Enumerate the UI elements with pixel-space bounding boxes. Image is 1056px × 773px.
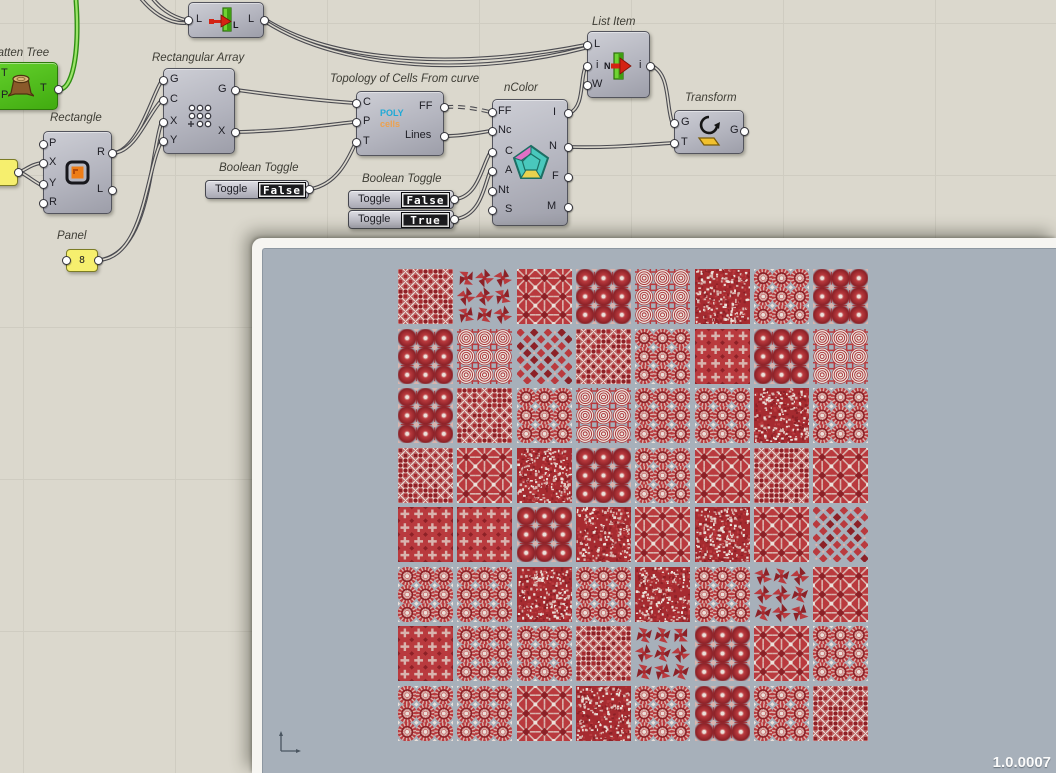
rectangle-icon <box>65 160 90 185</box>
pattern-tile <box>517 448 572 503</box>
port-dot[interactable] <box>14 168 23 177</box>
pattern-tile <box>576 626 631 681</box>
port-dot[interactable] <box>564 109 573 118</box>
rectangle-input-y: Y <box>49 177 56 189</box>
wire-sorter-to-listitem-1 <box>266 20 585 59</box>
pattern-tile <box>695 448 750 503</box>
transform-swirl-icon <box>692 113 726 149</box>
port-dot[interactable] <box>159 118 168 127</box>
pattern-tile <box>754 388 809 443</box>
flatten-tree-label: Flatten Tree <box>0 47 49 59</box>
pattern-tile <box>813 626 868 681</box>
rectangle-input-r: R <box>49 196 57 208</box>
wire-ncolor-i-to-listitem-i <box>570 68 585 113</box>
port-dot[interactable] <box>54 85 63 94</box>
topology-input-c: C <box>363 96 371 108</box>
port-dot[interactable] <box>159 137 168 146</box>
pattern-tile <box>695 626 750 681</box>
wire-rect-r-to-array-c-inner <box>114 101 161 153</box>
pattern-tile <box>457 507 512 562</box>
pattern-tile <box>576 448 631 503</box>
viewport-canvas[interactable]: 1.0.0007 <box>262 248 1056 773</box>
pattern-tile <box>635 448 690 503</box>
port-dot[interactable] <box>583 41 592 50</box>
ncolor-label: nColor <box>504 82 538 94</box>
port-dot[interactable] <box>159 96 168 105</box>
toggle2a-value[interactable]: False <box>401 192 450 208</box>
boolean-toggle-group-label: Boolean Toggle <box>362 173 442 185</box>
pattern-tile <box>457 329 512 384</box>
port-dot[interactable] <box>670 119 679 128</box>
wire-topo-ff-to-ncolor-ff-inner <box>446 107 490 112</box>
list-item-input-l: L <box>594 38 600 50</box>
pattern-tile <box>813 388 868 443</box>
array-input-x: X <box>170 115 177 127</box>
port-dot[interactable] <box>440 132 449 141</box>
pattern-tile <box>695 507 750 562</box>
wire-toggle2b-to-ncolor-a <box>456 172 490 219</box>
port-dot[interactable] <box>740 127 749 136</box>
svg-text:N: N <box>604 61 611 71</box>
wire-into-sorter-2-inner <box>136 0 186 23</box>
wire-topo-lines-to-ncolor-nc-inner <box>446 131 490 136</box>
wire-rect-r-to-array-g <box>114 82 161 153</box>
pattern-tile <box>695 269 750 324</box>
wire-array-x-to-topo-p <box>237 122 354 132</box>
array-dots-icon <box>184 102 216 136</box>
pattern-tile <box>398 329 453 384</box>
wire-slider-to-rect-x-inner <box>20 163 41 172</box>
sort-arrow-icon: L <box>207 6 245 34</box>
list-item-output-i: i <box>639 59 641 71</box>
pattern-tile <box>576 269 631 324</box>
port-dot[interactable] <box>450 195 459 204</box>
transform-input-t: T <box>681 136 688 148</box>
port-dot[interactable] <box>231 128 240 137</box>
rectangle-input-p: P <box>49 137 56 149</box>
pattern-tile <box>576 388 631 443</box>
list-item-label: List Item <box>592 16 635 28</box>
port-dot[interactable] <box>646 62 655 71</box>
port-dot[interactable] <box>39 199 48 208</box>
wire-ncolor-n-to-transform-t <box>570 143 672 147</box>
pattern-tile <box>695 686 750 741</box>
transform-input-g: G <box>681 116 690 128</box>
ncolor-input-nt: Nt <box>498 184 509 196</box>
port-dot[interactable] <box>39 180 48 189</box>
pattern-tile <box>754 448 809 503</box>
rectangle-label: Rectangle <box>50 112 102 124</box>
tree-stump-icon <box>8 71 34 98</box>
topology-label: Topology of Cells From curve <box>330 73 479 85</box>
pattern-tile <box>398 507 453 562</box>
toggle1-value[interactable]: False <box>258 182 306 198</box>
wire-into-sorter-1-inner <box>148 0 186 20</box>
wire-rect-r-to-array-g-inner <box>114 82 161 153</box>
pattern-tile <box>754 626 809 681</box>
pattern-tile <box>635 686 690 741</box>
rectangle-input-x: X <box>49 156 56 168</box>
port-dot[interactable] <box>62 256 71 265</box>
pattern-tile <box>635 269 690 324</box>
wire-slider-to-rect-y-inner <box>20 172 41 185</box>
pattern-tile <box>398 686 453 741</box>
port-dot[interactable] <box>94 256 103 265</box>
panel-value: 8 <box>79 255 85 266</box>
wire-toggle2a-to-ncolor-c <box>456 153 490 199</box>
pattern-tile <box>754 269 809 324</box>
port-dot[interactable] <box>260 16 269 25</box>
wire-rect-r-to-array-c <box>114 101 161 153</box>
port-dot[interactable] <box>352 138 361 147</box>
array-output-x: X <box>218 125 225 137</box>
pattern-tile <box>813 567 868 622</box>
pattern-tile <box>576 567 631 622</box>
wire-sorter-to-listitem-2-inner <box>266 22 585 65</box>
wire-into-sorter-2 <box>136 0 186 23</box>
wire-sorter-to-listitem-2 <box>266 22 585 65</box>
port-dot[interactable] <box>564 203 573 212</box>
pattern-tile <box>813 329 868 384</box>
wire-toggle2a-to-ncolor-c-inner <box>456 153 490 199</box>
topology-icon-cells: cells <box>380 119 400 129</box>
pattern-tile <box>754 686 809 741</box>
wire-flatten-out-selected <box>58 0 77 89</box>
pattern-tile-grid <box>263 249 1056 773</box>
wire-flatten-out-selected-inner <box>58 0 77 89</box>
wire-array-g-to-topo-c <box>237 90 354 103</box>
sorter-input-l: L <box>196 13 202 25</box>
pattern-tile <box>517 507 572 562</box>
topology-output-lines: Lines <box>405 129 431 141</box>
port-dot[interactable] <box>564 173 573 182</box>
port-dot[interactable] <box>231 86 240 95</box>
pattern-tile <box>457 567 512 622</box>
pattern-tile <box>457 269 512 324</box>
port-dot[interactable] <box>159 76 168 85</box>
port-dot[interactable] <box>488 127 497 136</box>
ncolor-output-m: M <box>547 200 556 212</box>
pattern-tile <box>576 507 631 562</box>
pattern-tile <box>635 626 690 681</box>
ncolor-input-s: S <box>505 203 512 215</box>
port-dot[interactable] <box>108 149 117 158</box>
port-dot[interactable] <box>352 99 361 108</box>
ncolor-input-ff: FF <box>498 105 511 117</box>
topology-output-ff: FF <box>419 100 432 112</box>
pattern-tile <box>576 329 631 384</box>
topology-input-p: P <box>363 115 370 127</box>
port-dot[interactable] <box>488 108 497 117</box>
wire-array-g-to-topo-c-inner <box>237 90 354 103</box>
port-dot[interactable] <box>488 187 497 196</box>
sorter-output-l: L <box>248 13 254 25</box>
boolean-toggle1-label: Boolean Toggle <box>219 162 299 174</box>
port-dot[interactable] <box>440 103 449 112</box>
topology-icon-poly: POLY <box>380 108 404 118</box>
flatten-tree-output-t: T <box>40 82 47 94</box>
wire-ncolor-i-to-listitem-i-inner <box>570 68 585 113</box>
ncolor-output-n: N <box>549 140 557 152</box>
rectangle-output-l: L <box>97 183 103 195</box>
pattern-tile <box>517 269 572 324</box>
rectangle-output-r: R <box>97 146 105 158</box>
port-dot[interactable] <box>488 148 497 157</box>
wire-array-x-to-topo-p-inner <box>237 122 354 132</box>
pattern-tile <box>398 388 453 443</box>
port-dot[interactable] <box>108 186 117 195</box>
pattern-tile <box>398 626 453 681</box>
port-dot[interactable] <box>488 206 497 215</box>
pattern-tile <box>635 388 690 443</box>
pattern-tile <box>695 567 750 622</box>
wire-slider-to-rect-y <box>20 172 41 185</box>
array-input-g: G <box>170 73 179 85</box>
wire-slider-to-rect-x <box>20 163 41 172</box>
wire-topo-lines-to-ncolor-nc <box>446 131 490 136</box>
pattern-tile <box>695 329 750 384</box>
ncolor-input-nc: Nc <box>498 124 511 136</box>
panel-label: Panel <box>57 230 86 242</box>
ncolor-output-f: F <box>552 170 559 182</box>
pattern-tile <box>813 448 868 503</box>
pattern-tile <box>517 329 572 384</box>
grasshopper-canvas[interactable]: { "components": { "flatten_tree": {"labe… <box>0 0 1056 773</box>
pattern-tile <box>576 686 631 741</box>
pattern-tile <box>635 329 690 384</box>
array-input-y: Y <box>170 134 177 146</box>
version-label: 1.0.0007 <box>993 754 1051 771</box>
port-dot[interactable] <box>352 118 361 127</box>
wire-toggle1-to-topo-t <box>311 144 355 189</box>
pattern-tile <box>754 567 809 622</box>
port-dot[interactable] <box>39 159 48 168</box>
toggle2b-text: Toggle <box>358 213 390 225</box>
list-item-arrow-icon: N <box>603 51 639 81</box>
port-dot[interactable] <box>564 143 573 152</box>
pattern-tile <box>398 448 453 503</box>
pattern-tile <box>635 507 690 562</box>
toggle2b-value[interactable]: True <box>401 212 450 228</box>
port-dot[interactable] <box>670 139 679 148</box>
pattern-tile <box>517 567 572 622</box>
toggle1-text: Toggle <box>215 183 247 195</box>
wire-toggle2b-to-ncolor-a-inner <box>456 172 490 219</box>
topology-input-t: T <box>363 135 370 147</box>
port-dot[interactable] <box>488 167 497 176</box>
viewport-window[interactable]: 1.0.0007 <box>252 238 1056 773</box>
rectangular-array-label: Rectangular Array <box>152 52 244 64</box>
wire-listitem-i-to-transform-g <box>652 66 672 122</box>
wire-listitem-i-to-transform-g-inner <box>652 66 672 122</box>
array-input-c: C <box>170 93 178 105</box>
list-item-input-w: W <box>592 78 602 90</box>
port-dot[interactable] <box>450 215 459 224</box>
transform-output-g: G <box>730 124 739 136</box>
pattern-tile <box>695 388 750 443</box>
pattern-tile <box>754 507 809 562</box>
wire-into-sorter-1 <box>148 0 186 20</box>
pattern-tile <box>517 626 572 681</box>
pattern-tile <box>457 448 512 503</box>
pattern-tile <box>813 686 868 741</box>
pattern-tile <box>457 626 512 681</box>
port-dot[interactable] <box>583 62 592 71</box>
pattern-tile <box>398 567 453 622</box>
pattern-tile <box>754 329 809 384</box>
pattern-tile <box>457 388 512 443</box>
pattern-tile <box>813 269 868 324</box>
port-dot[interactable] <box>184 16 193 25</box>
wire-topo-ff-to-ncolor-ff <box>446 107 490 112</box>
pattern-tile <box>517 388 572 443</box>
port-dot[interactable] <box>39 140 48 149</box>
pattern-tile <box>398 269 453 324</box>
svg-text:L: L <box>233 20 239 30</box>
flatten-tree-input-t: T <box>1 67 8 79</box>
wire-sorter-to-listitem-1-inner <box>266 20 585 59</box>
pattern-tile <box>813 507 868 562</box>
array-output-g: G <box>218 83 227 95</box>
pattern-tile <box>635 567 690 622</box>
transform-label: Transform <box>685 92 737 104</box>
pattern-tile <box>517 686 572 741</box>
pattern-tile <box>457 686 512 741</box>
ncolor-pentagon-icon <box>512 144 550 182</box>
port-dot[interactable] <box>305 185 314 194</box>
wire-toggle1-to-topo-t-inner <box>311 144 355 189</box>
toggle2a-text: Toggle <box>358 193 390 205</box>
wire-ncolor-n-to-transform-t-inner <box>570 143 672 147</box>
ncolor-output-i: I <box>553 106 556 118</box>
cplane-axis-icon <box>277 729 303 755</box>
list-item-input-i: i <box>596 59 598 71</box>
port-dot[interactable] <box>583 81 592 90</box>
